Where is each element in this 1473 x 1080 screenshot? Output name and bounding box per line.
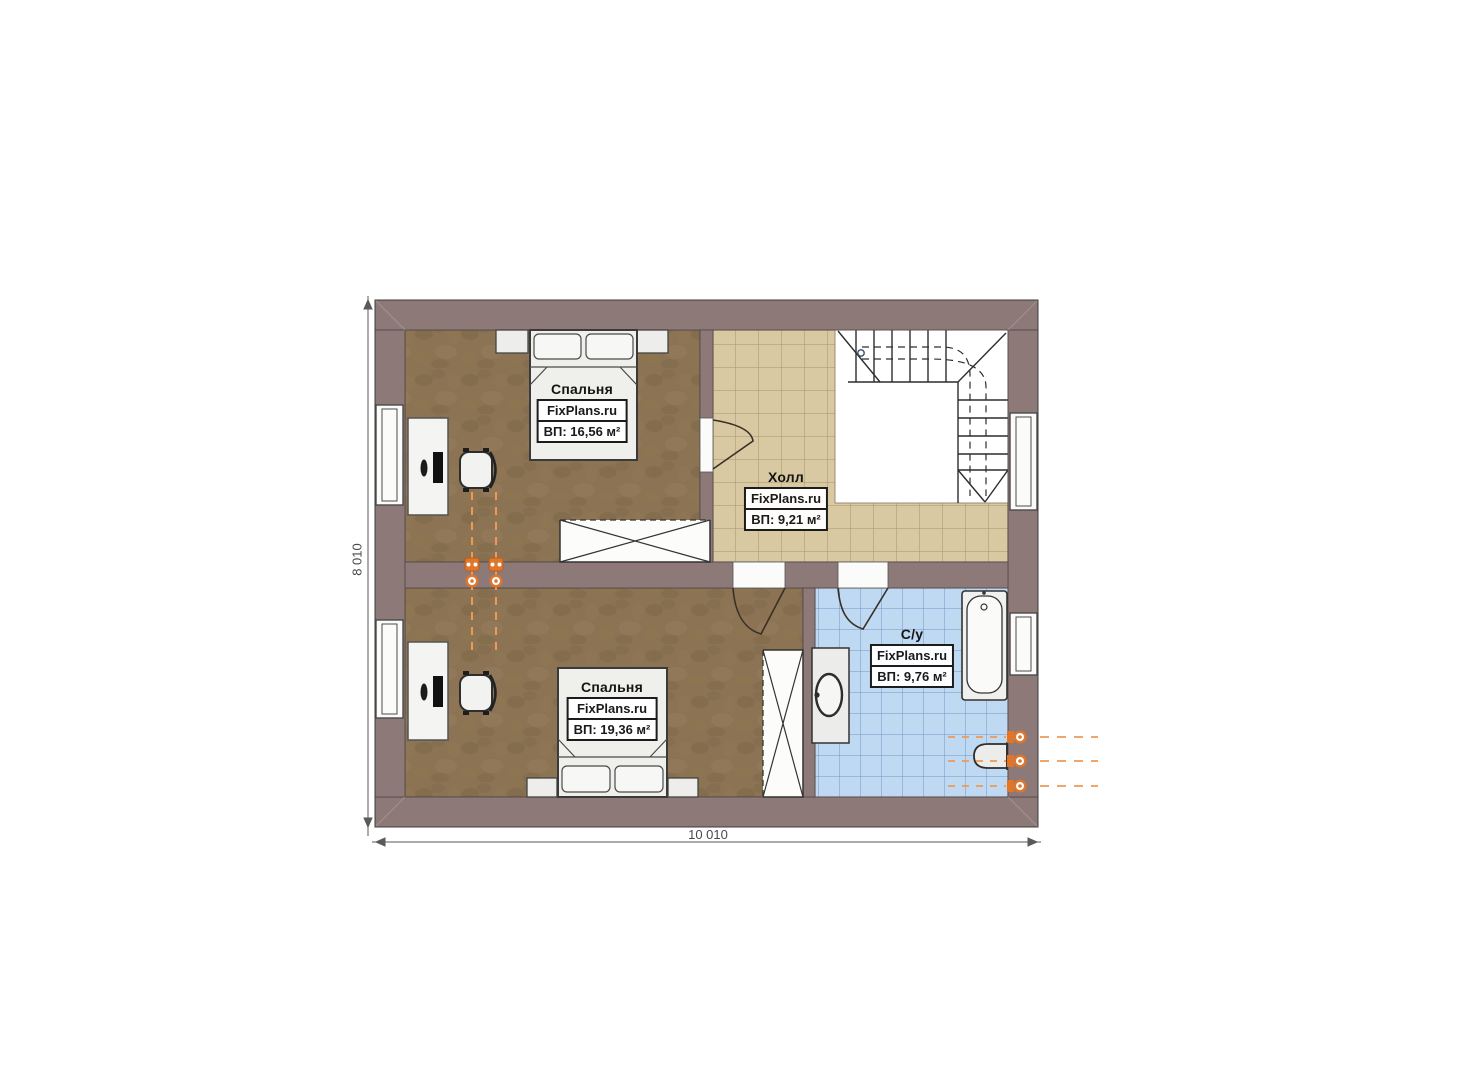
room-area-badge: ВП: 16,56 м² xyxy=(537,420,628,443)
nightstand xyxy=(496,330,528,353)
nightstand xyxy=(668,778,698,797)
room-site-badge: FixPlans.ru xyxy=(537,399,628,422)
wardrobe xyxy=(560,520,710,562)
dimension-width-label: 10 010 xyxy=(678,827,738,842)
room-label-bedroom2: Спальня FixPlans.ru ВП: 19,36 м² xyxy=(567,679,658,741)
room-info-boxes: FixPlans.ru ВП: 9,21 м² xyxy=(744,487,828,531)
desk-with-computer xyxy=(408,642,448,740)
toilet xyxy=(974,742,1007,770)
floor-plan-drawing xyxy=(0,0,1473,1080)
desk-with-computer xyxy=(408,418,448,515)
wall-left xyxy=(375,330,405,797)
nightstand xyxy=(527,778,557,797)
wardrobe xyxy=(763,650,803,797)
window-right-bathroom xyxy=(1010,613,1037,675)
room-info-boxes: FixPlans.ru ВП: 16,56 м² xyxy=(537,399,628,443)
riser-icon xyxy=(1007,780,1027,793)
room-info-boxes: FixPlans.ru ВП: 19,36 м² xyxy=(567,697,658,741)
door-opening-bedroom1 xyxy=(700,418,713,472)
room-name: С/у xyxy=(901,626,923,642)
room-area-badge: ВП: 9,76 м² xyxy=(870,665,954,688)
wall-bottom xyxy=(375,797,1038,827)
door-opening-bathroom xyxy=(838,562,888,588)
dimension-height-label: 8 010 xyxy=(350,537,365,583)
window-left-bedroom1 xyxy=(376,405,403,505)
room-name: Холл xyxy=(768,469,804,485)
room-area-badge: ВП: 19,36 м² xyxy=(567,718,658,741)
room-label-bedroom1: Спальня FixPlans.ru ВП: 16,56 м² xyxy=(537,381,628,443)
door-opening-bedroom2 xyxy=(733,562,785,588)
sink-vanity xyxy=(812,648,849,743)
room-name: Спальня xyxy=(581,679,643,695)
room-label-bathroom: С/у FixPlans.ru ВП: 9,76 м² xyxy=(870,626,954,688)
floor-plan-page: Спальня FixPlans.ru ВП: 16,56 м² Холл Fi… xyxy=(0,0,1473,1080)
window-right-stairs xyxy=(1010,413,1037,510)
riser-icon xyxy=(1007,731,1027,744)
bathtub xyxy=(962,591,1007,700)
staircase xyxy=(835,330,1008,503)
window-left-bedroom2 xyxy=(376,620,403,718)
room-site-badge: FixPlans.ru xyxy=(567,697,658,720)
room-info-boxes: FixPlans.ru ВП: 9,76 м² xyxy=(870,644,954,688)
office-chair xyxy=(460,448,496,492)
riser-icon xyxy=(1007,755,1027,768)
wall-top xyxy=(375,300,1038,330)
room-name: Спальня xyxy=(551,381,613,397)
room-area-badge: ВП: 9,21 м² xyxy=(744,508,828,531)
nightstand xyxy=(636,330,668,353)
wall-right xyxy=(1008,330,1038,797)
room-label-hall: Холл FixPlans.ru ВП: 9,21 м² xyxy=(744,469,828,531)
room-site-badge: FixPlans.ru xyxy=(870,644,954,667)
room-site-badge: FixPlans.ru xyxy=(744,487,828,510)
office-chair xyxy=(460,671,496,715)
